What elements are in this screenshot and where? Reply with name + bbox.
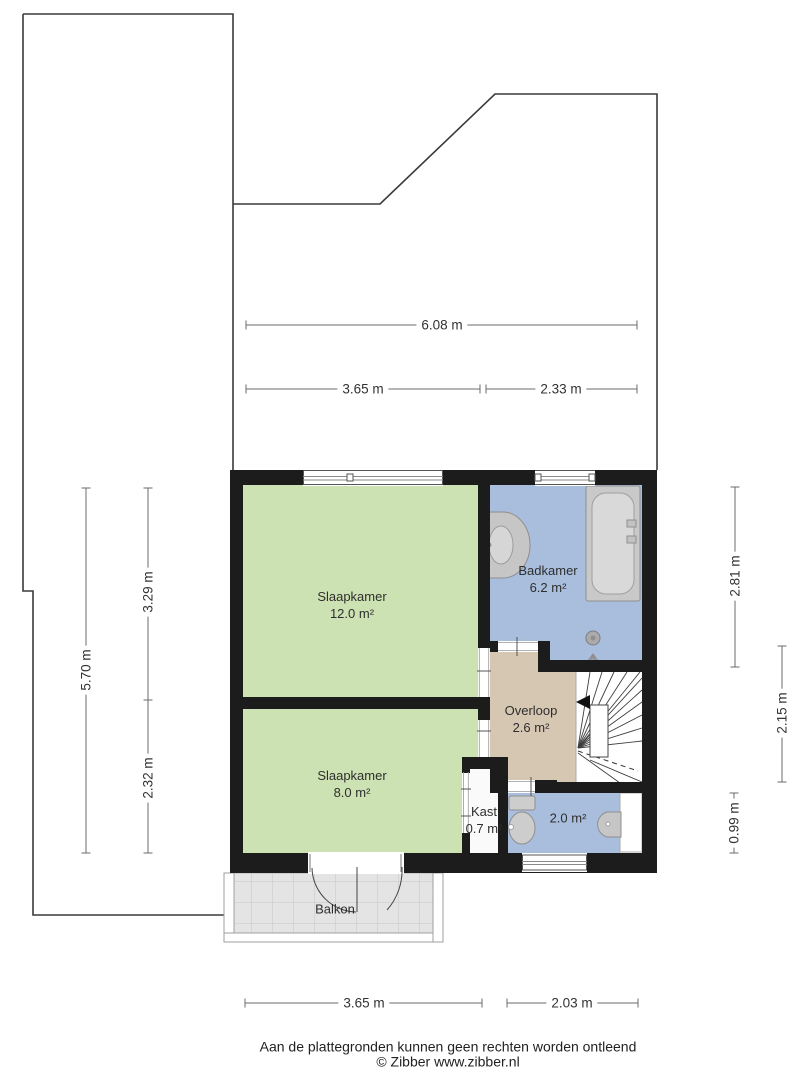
label-bedroom-small: Slaapkamer 8.0 m² bbox=[317, 767, 386, 801]
dim-left-total: 5.70 m bbox=[78, 645, 95, 694]
footer-credit: © Zibber www.zibber.nl bbox=[376, 1053, 519, 1072]
dim-right-upper: 2.81 m bbox=[727, 551, 744, 600]
toilet-tank bbox=[509, 796, 535, 810]
window-bathroom bbox=[535, 469, 595, 486]
room-name: Overloop bbox=[505, 702, 558, 719]
floorplan-page: Slaapkamer 12.0 m² Badkamer 6.2 m² Overl… bbox=[0, 0, 810, 1080]
room-name: Slaapkamer bbox=[317, 588, 386, 605]
label-landing: Overloop 2.6 m² bbox=[505, 702, 558, 736]
room-area: 8.0 m² bbox=[317, 784, 386, 801]
dim-right-lower: 0.99 m bbox=[726, 798, 743, 847]
label-closet: Kast 0.7 m² bbox=[466, 803, 503, 837]
room-area: 6.2 m² bbox=[518, 579, 577, 596]
dim-bottom-right: 2.03 m bbox=[546, 995, 597, 1012]
toilet-shaft-strip bbox=[620, 793, 642, 852]
wall-bathroom-bottom bbox=[548, 660, 642, 672]
shower-drain-center bbox=[591, 636, 596, 641]
wall-toilet-top-left bbox=[490, 757, 508, 793]
room-area: 0.7 m² bbox=[466, 820, 503, 837]
room-name: Balkon bbox=[315, 901, 355, 918]
contour-left-outline bbox=[23, 14, 231, 915]
room-name: Kast bbox=[466, 803, 503, 820]
dim-right-middle: 2.15 m bbox=[774, 688, 791, 737]
balcony-rail-right bbox=[433, 873, 443, 942]
contour-roof-outline bbox=[233, 94, 657, 470]
window-bedroom-large bbox=[303, 469, 443, 486]
dim-bottom-left: 3.65 m bbox=[338, 995, 389, 1012]
wall-under-stairs bbox=[557, 782, 642, 793]
room-area: 2.0 m² bbox=[550, 810, 587, 827]
wall-left bbox=[230, 470, 243, 873]
dim-top-total: 6.08 m bbox=[416, 317, 467, 334]
floorplan-drawing bbox=[0, 0, 810, 1080]
wall-bottom bbox=[230, 853, 657, 873]
wall-right bbox=[642, 470, 657, 873]
balcony-rail-left bbox=[224, 873, 234, 941]
window-mullion bbox=[589, 474, 595, 481]
room-area: 2.6 m² bbox=[505, 719, 558, 736]
wall-between-bedrooms bbox=[243, 697, 490, 709]
room-area: 12.0 m² bbox=[317, 605, 386, 622]
dim-top-left: 3.65 m bbox=[337, 381, 388, 398]
dim-left-upper: 3.29 m bbox=[140, 567, 157, 616]
balcony-rail-bottom bbox=[224, 933, 443, 942]
window-toilet bbox=[522, 853, 587, 872]
label-bathroom: Badkamer 6.2 m² bbox=[518, 562, 577, 596]
dim-top-right: 2.33 m bbox=[535, 381, 586, 398]
room-name: Badkamer bbox=[518, 562, 577, 579]
bathtub-tap2 bbox=[627, 536, 636, 543]
toilet-sink-tap bbox=[606, 822, 610, 826]
wall-toilet-top-right bbox=[535, 780, 557, 793]
label-toilet: 2.0 m² bbox=[550, 810, 587, 827]
wall-bathroom-door-left bbox=[490, 641, 498, 652]
contour-top-outline bbox=[23, 14, 233, 470]
balcony-door-opening bbox=[308, 852, 404, 874]
wall-bedroom-bathroom bbox=[478, 485, 490, 648]
window-mullion bbox=[535, 474, 541, 481]
room-name: Slaapkamer bbox=[317, 767, 386, 784]
label-bedroom-large: Slaapkamer 12.0 m² bbox=[317, 588, 386, 622]
wall-closet-left-upper bbox=[462, 757, 470, 773]
window-mullion bbox=[347, 474, 353, 481]
label-balcony: Balkon bbox=[315, 901, 355, 918]
bathroom-sink-basin bbox=[489, 526, 513, 564]
dim-left-lower: 2.32 m bbox=[140, 753, 157, 802]
toilet-flush-dot bbox=[509, 825, 514, 830]
stairs-landing-box bbox=[590, 705, 608, 757]
bathtub-tap bbox=[627, 520, 636, 527]
